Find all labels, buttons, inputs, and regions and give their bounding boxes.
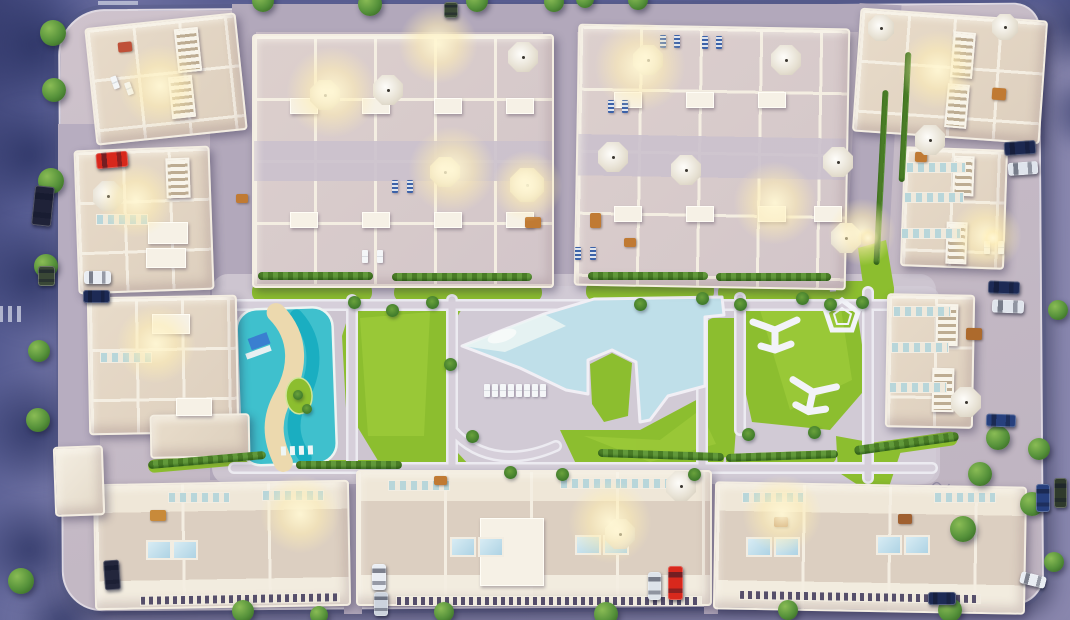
hedge xyxy=(716,273,831,281)
patio-umbrella xyxy=(598,142,628,172)
sun-lounger xyxy=(575,247,581,260)
patio-umbrella xyxy=(510,168,544,202)
tree xyxy=(576,0,594,8)
patio-furniture xyxy=(525,217,541,228)
car xyxy=(103,559,121,590)
car xyxy=(444,2,458,18)
patio-furniture xyxy=(898,514,912,524)
car xyxy=(1008,161,1039,176)
palm-tree xyxy=(824,298,837,311)
roof-structure xyxy=(506,98,534,114)
roof-structure xyxy=(434,212,462,228)
car xyxy=(986,413,1016,427)
palm-tree xyxy=(348,296,361,309)
tree xyxy=(544,0,564,12)
skylight xyxy=(904,535,930,555)
palm-tree xyxy=(466,430,479,443)
sun-lounger xyxy=(508,384,514,397)
patio-umbrella xyxy=(310,80,340,110)
car xyxy=(83,290,110,303)
car xyxy=(988,280,1020,294)
car xyxy=(928,592,956,605)
sun-lounger xyxy=(516,384,522,397)
tree xyxy=(950,516,976,542)
light-glow xyxy=(398,4,478,84)
window-row xyxy=(96,214,148,225)
patio-umbrella xyxy=(992,14,1018,40)
sun-lounger xyxy=(716,36,722,49)
tree xyxy=(310,606,328,620)
car xyxy=(1036,484,1050,512)
hedge xyxy=(258,272,373,280)
window-row xyxy=(934,492,996,503)
window-row xyxy=(100,352,152,363)
tree xyxy=(40,20,66,46)
roof-structure xyxy=(176,398,212,416)
roof-stairwell xyxy=(168,75,196,119)
palm-tree xyxy=(696,292,709,305)
roof-structure xyxy=(152,314,190,334)
patio-furniture xyxy=(236,194,248,203)
sun-lounger xyxy=(492,384,498,397)
roof-structure xyxy=(686,92,714,108)
skylight xyxy=(746,537,772,557)
sun-lounger xyxy=(500,384,506,397)
hedge xyxy=(598,449,724,461)
patio-umbrella xyxy=(951,387,981,417)
sun-lounger xyxy=(590,247,596,260)
light-glow xyxy=(260,474,340,554)
sun-lounger xyxy=(622,100,628,113)
patio-furniture xyxy=(118,41,133,52)
window-row xyxy=(891,342,949,353)
hedge xyxy=(873,90,888,265)
sun-lounger xyxy=(524,384,530,397)
sun-lounger xyxy=(532,384,538,397)
sun-lounger xyxy=(702,36,708,49)
car xyxy=(1054,478,1067,508)
tree xyxy=(986,426,1010,450)
sun-lounger xyxy=(392,180,398,193)
tree xyxy=(466,0,488,12)
skylight xyxy=(876,535,902,555)
roof-stairwell xyxy=(165,158,190,199)
sun-lounger xyxy=(984,241,990,254)
patio-furniture xyxy=(774,517,788,527)
window-row xyxy=(560,478,622,489)
car xyxy=(1019,571,1047,589)
tree xyxy=(8,568,34,594)
roof-structure xyxy=(686,206,714,222)
hedge xyxy=(148,451,266,469)
patio-umbrella xyxy=(605,519,635,549)
skylight xyxy=(575,535,601,555)
car xyxy=(1004,140,1037,156)
roof-structure xyxy=(146,248,186,268)
patio-umbrella xyxy=(430,157,460,187)
palm-tree xyxy=(808,426,821,439)
skylight xyxy=(450,537,476,557)
palm-tree xyxy=(796,292,809,305)
roof-structure xyxy=(614,92,642,108)
patio-umbrella xyxy=(823,147,853,177)
tree xyxy=(28,340,50,362)
patio-umbrella xyxy=(633,45,663,75)
sun-lounger xyxy=(540,384,546,397)
patio-furniture xyxy=(992,88,1007,101)
tree xyxy=(968,462,992,486)
skylight xyxy=(146,540,172,560)
light-glow xyxy=(733,161,817,245)
tree xyxy=(26,408,50,432)
roof-structure xyxy=(290,212,318,228)
palm-tree xyxy=(386,304,399,317)
tree xyxy=(232,600,254,620)
patio-furniture xyxy=(590,213,601,228)
tree xyxy=(594,602,618,620)
window-row xyxy=(904,192,964,203)
patio-umbrella xyxy=(868,15,894,41)
palm-tree xyxy=(556,468,569,481)
skylight xyxy=(774,537,800,557)
roof-stairwell xyxy=(944,83,970,129)
car xyxy=(31,185,55,227)
sun-lounger xyxy=(377,250,383,263)
palm-tree xyxy=(444,358,457,371)
palm-tree xyxy=(293,390,303,400)
tree xyxy=(42,78,66,102)
hedge xyxy=(392,273,532,281)
patio-umbrella xyxy=(93,181,123,211)
roof-structure xyxy=(434,98,462,114)
patio-umbrella xyxy=(373,75,403,105)
palm-tree xyxy=(742,428,755,441)
hedge xyxy=(854,432,959,456)
hedge xyxy=(726,450,838,462)
tree xyxy=(778,600,798,620)
roof-stairwell xyxy=(174,27,202,73)
roof-structure xyxy=(814,206,842,222)
window-row xyxy=(901,228,961,239)
roof-structure xyxy=(614,206,642,222)
palm-tree xyxy=(688,468,701,481)
window-row xyxy=(168,492,230,503)
car xyxy=(374,592,388,616)
sun-lounger xyxy=(674,35,680,48)
palm-tree xyxy=(426,296,439,309)
car xyxy=(38,266,55,286)
patio-furniture xyxy=(624,238,636,247)
palm-tree xyxy=(504,466,517,479)
car xyxy=(668,566,683,600)
window-row xyxy=(620,478,672,489)
tree xyxy=(628,0,648,10)
skylight xyxy=(172,540,198,560)
car xyxy=(992,299,1024,313)
aerial-3d-render xyxy=(0,0,1070,620)
sun-lounger xyxy=(407,180,413,193)
patio-umbrella xyxy=(915,125,945,155)
patio-furniture xyxy=(966,328,982,340)
hedge xyxy=(588,272,708,280)
sun-lounger xyxy=(110,75,120,89)
patio-furniture xyxy=(150,510,166,521)
window-row xyxy=(893,306,951,317)
patio-furniture xyxy=(434,476,447,485)
palm-tree xyxy=(302,404,312,414)
skylight xyxy=(478,537,504,557)
patio-umbrella xyxy=(771,45,801,75)
tree xyxy=(358,0,382,16)
roof-structure xyxy=(362,212,390,228)
roof-structure xyxy=(758,206,786,222)
car xyxy=(84,271,111,284)
roof-stairwell xyxy=(950,31,976,79)
palm-tree xyxy=(734,298,747,311)
patio-umbrella xyxy=(831,223,861,253)
roof-structure xyxy=(148,222,188,244)
palm-tree xyxy=(634,298,647,311)
patio-umbrella xyxy=(671,155,701,185)
sun-lounger xyxy=(124,81,134,95)
roof-structure xyxy=(758,92,786,108)
window-row xyxy=(906,162,966,173)
window-row xyxy=(742,492,804,503)
car xyxy=(95,151,128,170)
car xyxy=(372,564,386,590)
sun-lounger xyxy=(998,241,1004,254)
palm-tree xyxy=(856,296,869,309)
sun-lounger xyxy=(484,384,490,397)
tree xyxy=(1028,438,1050,460)
sun-lounger xyxy=(608,100,614,113)
decorations-layer xyxy=(0,0,1070,620)
window-row xyxy=(262,490,324,501)
tree xyxy=(1044,552,1064,572)
patio-umbrella xyxy=(508,42,538,72)
window-row xyxy=(889,382,947,393)
tree xyxy=(1048,300,1068,320)
car xyxy=(648,572,661,600)
tree xyxy=(434,602,454,620)
sun-lounger xyxy=(362,250,368,263)
hedge xyxy=(296,461,402,469)
tree xyxy=(252,0,274,12)
sun-lounger xyxy=(660,35,666,48)
